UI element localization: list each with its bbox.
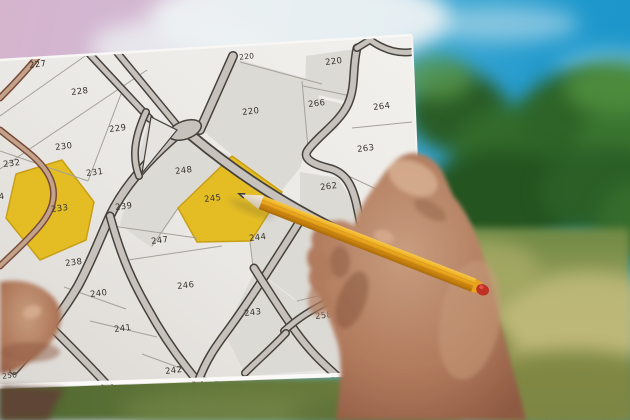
parcel-label: 228 xyxy=(71,86,89,98)
parcel-label: 245 xyxy=(204,193,222,205)
parcel-label: 229 xyxy=(109,123,127,135)
parcel-label: 231 xyxy=(86,167,104,179)
parcel-label: 244 xyxy=(249,232,267,244)
parcel-label: 247 xyxy=(151,235,169,247)
parcel-label: 227 xyxy=(29,59,47,71)
parcel-label-partial: 220 xyxy=(239,51,255,62)
parcel-label: 238 xyxy=(65,257,83,269)
parcel-label: 263 xyxy=(357,143,375,155)
parcel-label: 241 xyxy=(114,323,132,335)
parcel-label: 220 xyxy=(242,106,260,118)
parcel-label: 232 xyxy=(3,158,21,170)
parcel-label: 248 xyxy=(175,165,193,177)
scene-graphics: 227 228 229 230 232 231 233 239 248 245 … xyxy=(0,0,630,420)
hand-below-paper xyxy=(0,386,64,420)
parcel-label: 230 xyxy=(55,141,73,153)
parcel-label: 266 xyxy=(308,98,326,110)
parcel-label: 220 xyxy=(325,56,343,68)
photo-scene: 227 228 229 230 232 231 233 239 248 245 … xyxy=(0,0,630,420)
parcel-label: 242 xyxy=(165,365,183,377)
parcel-label: 243 xyxy=(244,307,262,319)
parcel-label: 239 xyxy=(115,201,133,213)
parcel-label: 264 xyxy=(373,101,391,113)
parcel-label: 240 xyxy=(90,288,108,300)
parcel-label: 246 xyxy=(177,280,195,292)
parcel-label: 233 xyxy=(51,203,69,215)
parcel-label: 262 xyxy=(320,181,338,193)
